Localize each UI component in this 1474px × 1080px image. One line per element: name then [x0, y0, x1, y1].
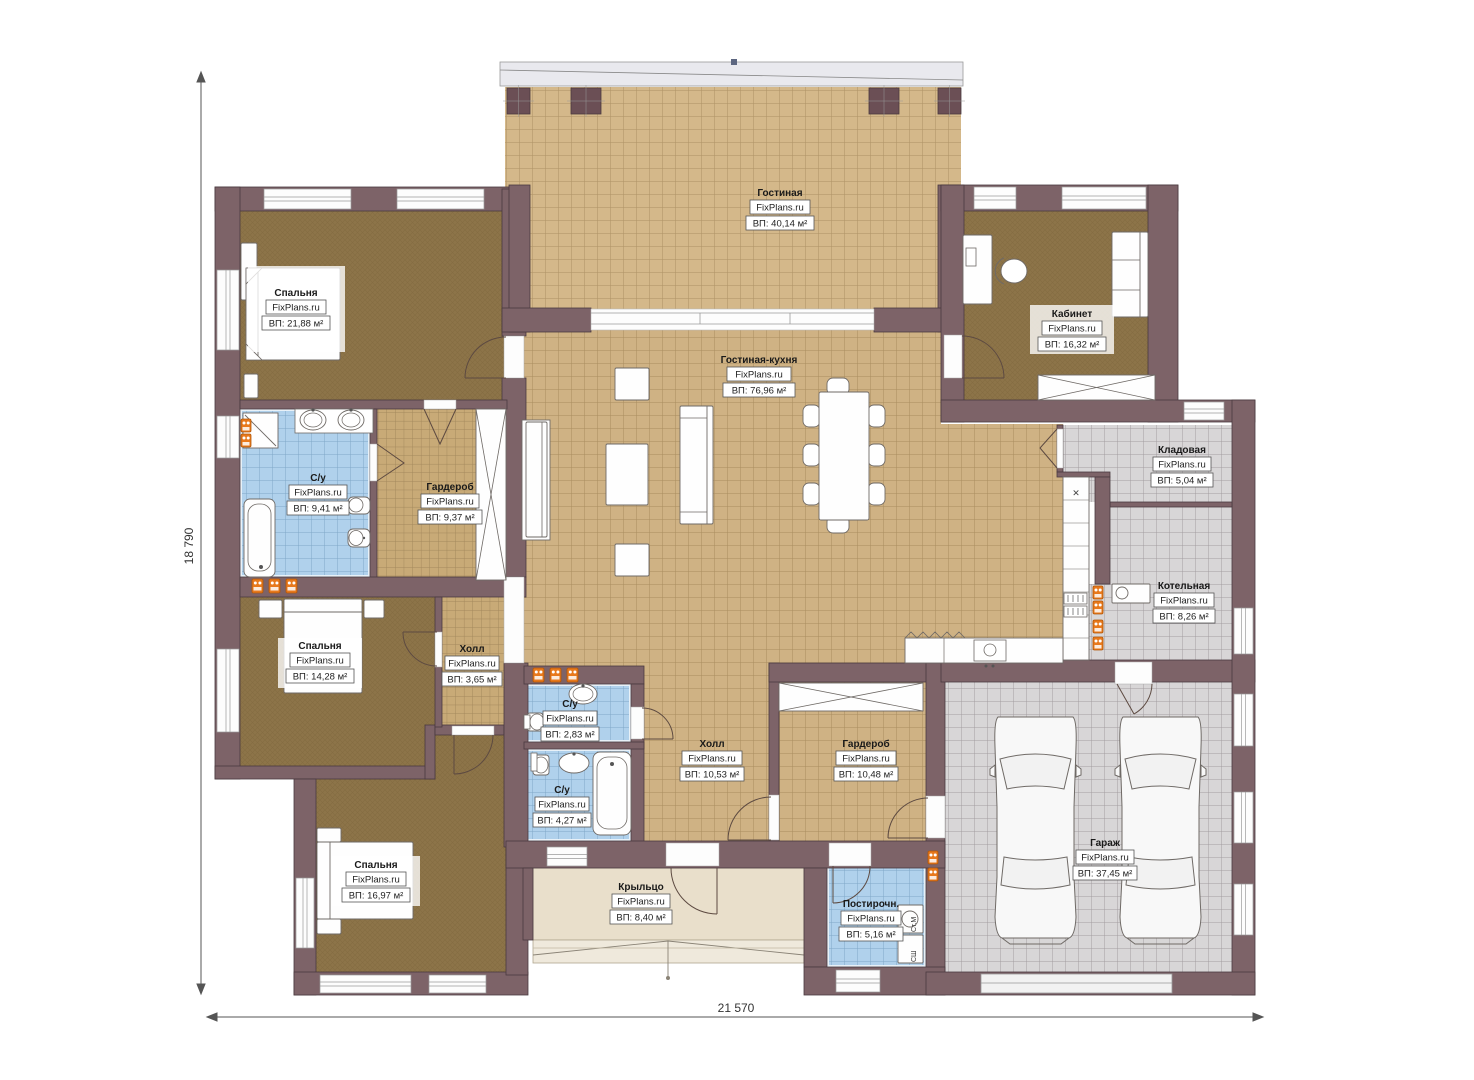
svg-text:FixPlans.ru: FixPlans.ru	[847, 914, 895, 925]
svg-text:FixPlans.ru: FixPlans.ru	[352, 875, 400, 886]
svg-text:С/у: С/у	[562, 699, 578, 710]
svg-text:FixPlans.ru: FixPlans.ru	[1158, 460, 1206, 471]
svg-text:ВП: 4,27 м²: ВП: 4,27 м²	[537, 816, 586, 827]
svg-text:FixPlans.ru: FixPlans.ru	[617, 897, 665, 908]
svg-text:ВП: 9,37 м²: ВП: 9,37 м²	[425, 513, 474, 524]
svg-text:ВП: 16,97 м²: ВП: 16,97 м²	[349, 891, 404, 902]
svg-text:21 570: 21 570	[718, 1001, 755, 1015]
svg-text:FixPlans.ru: FixPlans.ru	[756, 203, 804, 214]
svg-text:ВП: 3,65 м²: ВП: 3,65 м²	[447, 675, 496, 686]
svg-text:✕: ✕	[1072, 488, 1080, 498]
svg-text:Гараж: Гараж	[1090, 838, 1121, 849]
svg-text:Спальня: Спальня	[274, 288, 317, 299]
svg-text:ВП: 40,14 м²: ВП: 40,14 м²	[753, 219, 808, 230]
svg-text:С/у: С/у	[310, 473, 326, 484]
svg-text:ВП: 10,48 м²: ВП: 10,48 м²	[839, 770, 894, 781]
svg-text:ВП: 8,26 м²: ВП: 8,26 м²	[1159, 612, 1208, 623]
svg-text:СШ: СШ	[911, 951, 918, 962]
svg-text:Гардероб: Гардероб	[842, 738, 889, 750]
svg-text:FixPlans.ru: FixPlans.ru	[272, 303, 320, 314]
svg-text:FixPlans.ru: FixPlans.ru	[538, 800, 586, 811]
svg-text:Холл: Холл	[699, 739, 724, 750]
svg-text:ВП: 2,83 м²: ВП: 2,83 м²	[545, 730, 594, 741]
svg-text:Крыльцо: Крыльцо	[618, 882, 664, 893]
svg-text:FixPlans.ru: FixPlans.ru	[1160, 596, 1208, 607]
svg-text:ВП: 21,88 м²: ВП: 21,88 м²	[269, 319, 324, 330]
svg-text:ВП: 9,41 м²: ВП: 9,41 м²	[293, 504, 342, 515]
svg-text:ВП: 10,53 м²: ВП: 10,53 м²	[685, 770, 740, 781]
svg-text:Ст.М: Ст.М	[911, 917, 918, 932]
svg-text:ВП: 5,04 м²: ВП: 5,04 м²	[1157, 476, 1206, 487]
svg-text:FixPlans.ru: FixPlans.ru	[735, 370, 783, 381]
svg-text:С/у: С/у	[554, 785, 570, 796]
svg-text:Постирочн.: Постирочн.	[843, 899, 900, 910]
svg-text:FixPlans.ru: FixPlans.ru	[1048, 324, 1096, 335]
svg-text:Спальня: Спальня	[354, 860, 397, 871]
svg-text:Спальня: Спальня	[298, 641, 341, 652]
svg-text:ВП: 16,32 м²: ВП: 16,32 м²	[1045, 340, 1100, 351]
svg-text:Кладовая: Кладовая	[1158, 445, 1206, 456]
svg-text:Гостиная: Гостиная	[757, 188, 802, 199]
svg-text:FixPlans.ru: FixPlans.ru	[296, 656, 344, 667]
svg-text:ВП: 14,28 м²: ВП: 14,28 м²	[293, 672, 348, 683]
svg-text:FixPlans.ru: FixPlans.ru	[1081, 853, 1129, 864]
svg-text:Кабинет: Кабинет	[1052, 308, 1093, 320]
svg-text:Гостиная-кухня: Гостиная-кухня	[721, 355, 798, 366]
svg-text:ВП: 8,40 м²: ВП: 8,40 м²	[616, 913, 665, 924]
svg-text:Котельная: Котельная	[1158, 581, 1211, 592]
svg-text:FixPlans.ru: FixPlans.ru	[448, 659, 496, 670]
svg-text:ВП: 76,96 м²: ВП: 76,96 м²	[732, 386, 787, 397]
svg-text:FixPlans.ru: FixPlans.ru	[688, 754, 736, 765]
svg-text:FixPlans.ru: FixPlans.ru	[842, 754, 890, 765]
svg-text:FixPlans.ru: FixPlans.ru	[426, 497, 474, 508]
svg-text:FixPlans.ru: FixPlans.ru	[546, 714, 594, 725]
svg-text:18 790: 18 790	[182, 527, 196, 564]
svg-text:ВП: 37,45 м²: ВП: 37,45 м²	[1078, 869, 1133, 880]
svg-text:Гардероб: Гардероб	[426, 481, 473, 493]
svg-text:Холл: Холл	[459, 644, 484, 655]
svg-text:ВП: 5,16 м²: ВП: 5,16 м²	[846, 930, 895, 941]
svg-text:FixPlans.ru: FixPlans.ru	[294, 488, 342, 499]
